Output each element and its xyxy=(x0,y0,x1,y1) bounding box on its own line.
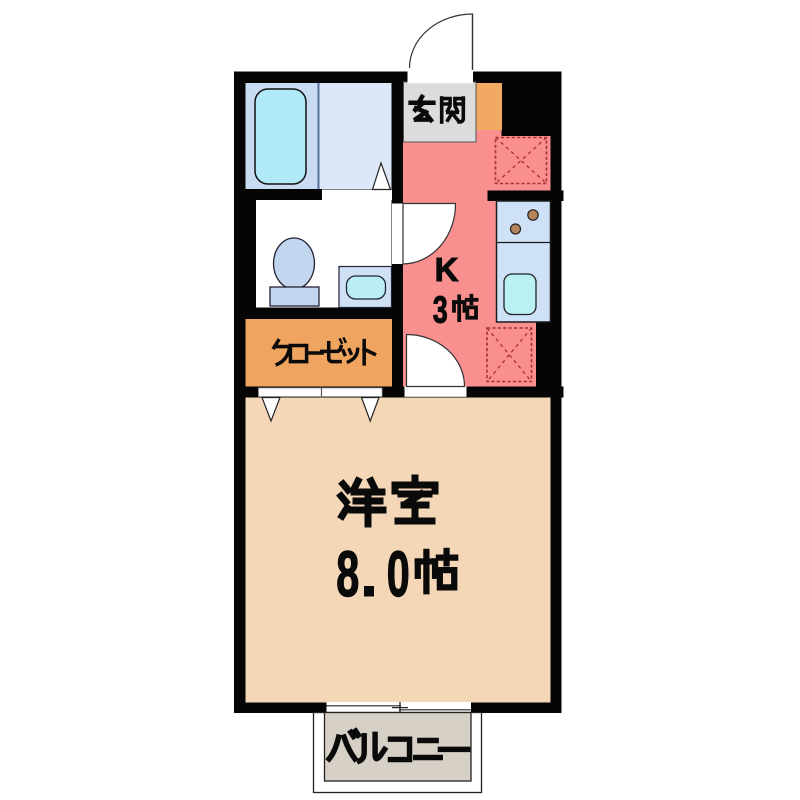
svg-text:8: 8 xyxy=(336,538,359,610)
svg-text:K: K xyxy=(435,251,459,288)
svg-text:.: . xyxy=(360,538,378,610)
svg-text:0: 0 xyxy=(387,538,410,610)
svg-text:3: 3 xyxy=(433,290,448,332)
